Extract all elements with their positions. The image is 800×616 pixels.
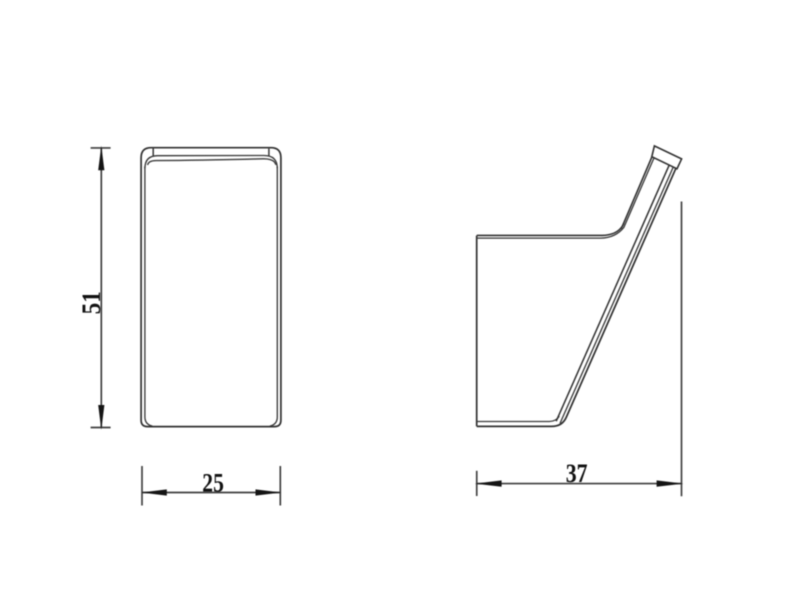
svg-text:25: 25 (202, 467, 224, 497)
svg-text:51: 51 (76, 291, 106, 314)
svg-text:37: 37 (566, 458, 588, 488)
